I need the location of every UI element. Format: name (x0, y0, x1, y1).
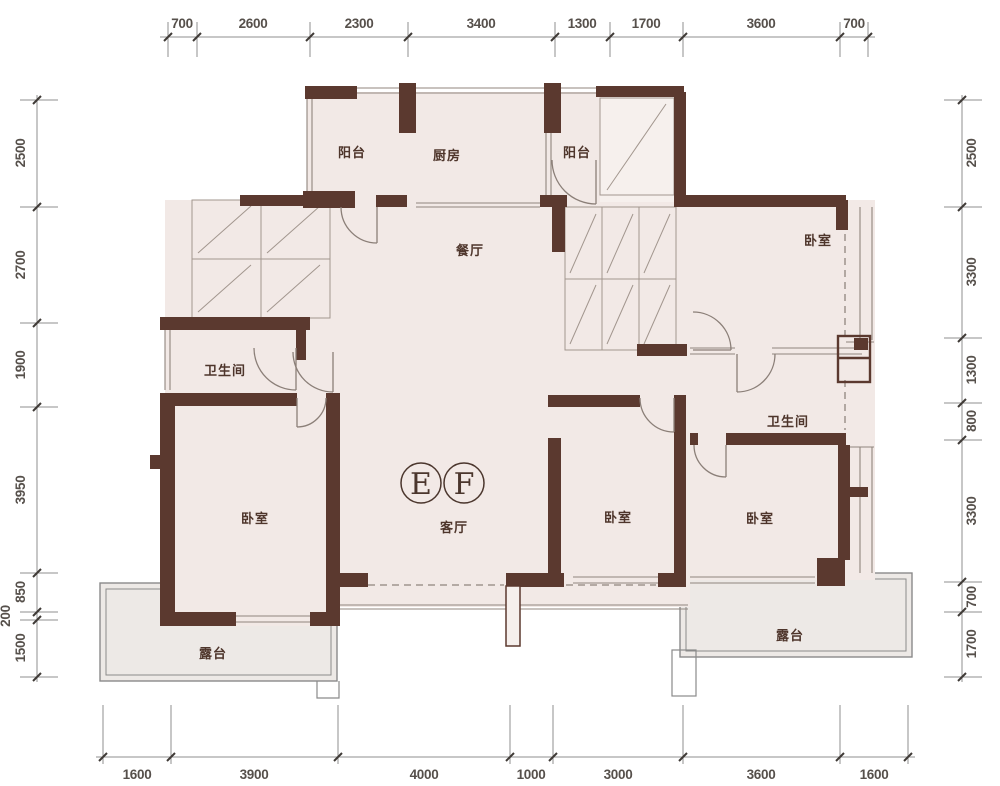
dim-right-5: 700 (964, 586, 979, 608)
label-bedroom-right: 卧室 (746, 511, 774, 526)
dim-left-1: 2700 (13, 251, 28, 280)
dim-bottom-0: 1600 (123, 767, 152, 782)
dim-left-4: 850 (13, 581, 28, 603)
label-balcony-top-right: 阳台 (563, 145, 591, 160)
dim-bottom-2: 4000 (410, 767, 439, 782)
dim-left-5: 200 (0, 605, 13, 627)
unit-e-letter: E (410, 467, 432, 502)
dim-top-4: 1300 (568, 16, 597, 31)
floor-plan-page: 700 2600 2300 3400 1300 1700 3600 700 16… (0, 0, 1000, 786)
dim-left-6: 1500 (13, 634, 28, 663)
dim-extension-lines-bottom (103, 705, 908, 764)
dim-bottom-5: 3600 (747, 767, 776, 782)
floor-plan-drawing: 700 2600 2300 3400 1300 1700 3600 700 16… (0, 0, 1000, 786)
dim-right-3: 800 (964, 410, 979, 432)
label-bedroom-left: 卧室 (241, 511, 269, 526)
unit-f-letter: F (454, 467, 475, 502)
terrace-right-outer (680, 573, 912, 657)
dim-bottom-4: 3000 (604, 767, 633, 782)
dim-right-1: 3300 (964, 258, 979, 287)
label-kitchen: 厨房 (433, 148, 461, 163)
dim-top-7: 700 (843, 16, 865, 31)
floor-fills (165, 92, 875, 626)
label-dining: 餐厅 (455, 243, 484, 258)
dim-right-2: 1300 (964, 356, 979, 385)
dim-left-0: 2500 (13, 139, 28, 168)
dim-top-6: 3600 (747, 16, 776, 31)
dim-top-5: 1700 (632, 16, 661, 31)
dim-bottom-6: 1600 (860, 767, 889, 782)
label-living: 客厅 (440, 520, 468, 535)
label-bedroom-top-right: 卧室 (804, 233, 832, 248)
dim-right-6: 1700 (964, 630, 979, 659)
column-south (506, 586, 520, 646)
dim-right-0: 2500 (964, 139, 979, 168)
dim-right-4: 3300 (964, 497, 979, 526)
dim-top-0: 700 (171, 16, 193, 31)
dim-top-2: 2300 (345, 16, 374, 31)
dim-left-2: 1900 (13, 351, 28, 380)
dim-left-3: 3950 (13, 476, 28, 505)
floor-void-cell (600, 92, 677, 202)
label-terrace-left: 露台 (199, 646, 227, 661)
dim-top-1: 2600 (239, 16, 268, 31)
label-bedroom-middle: 卧室 (604, 510, 632, 525)
dim-bottom-1: 3900 (240, 767, 269, 782)
label-bathroom-left: 卫生间 (204, 363, 246, 378)
dim-bottom-3: 1000 (517, 767, 546, 782)
label-terrace-right: 露台 (776, 628, 804, 643)
terrace-left-step (317, 681, 339, 698)
floor-left-wing (165, 394, 340, 626)
label-bathroom-right: 卫生间 (767, 414, 809, 429)
label-balcony-left: 阳台 (338, 145, 366, 160)
dim-top-3: 3400 (467, 16, 496, 31)
